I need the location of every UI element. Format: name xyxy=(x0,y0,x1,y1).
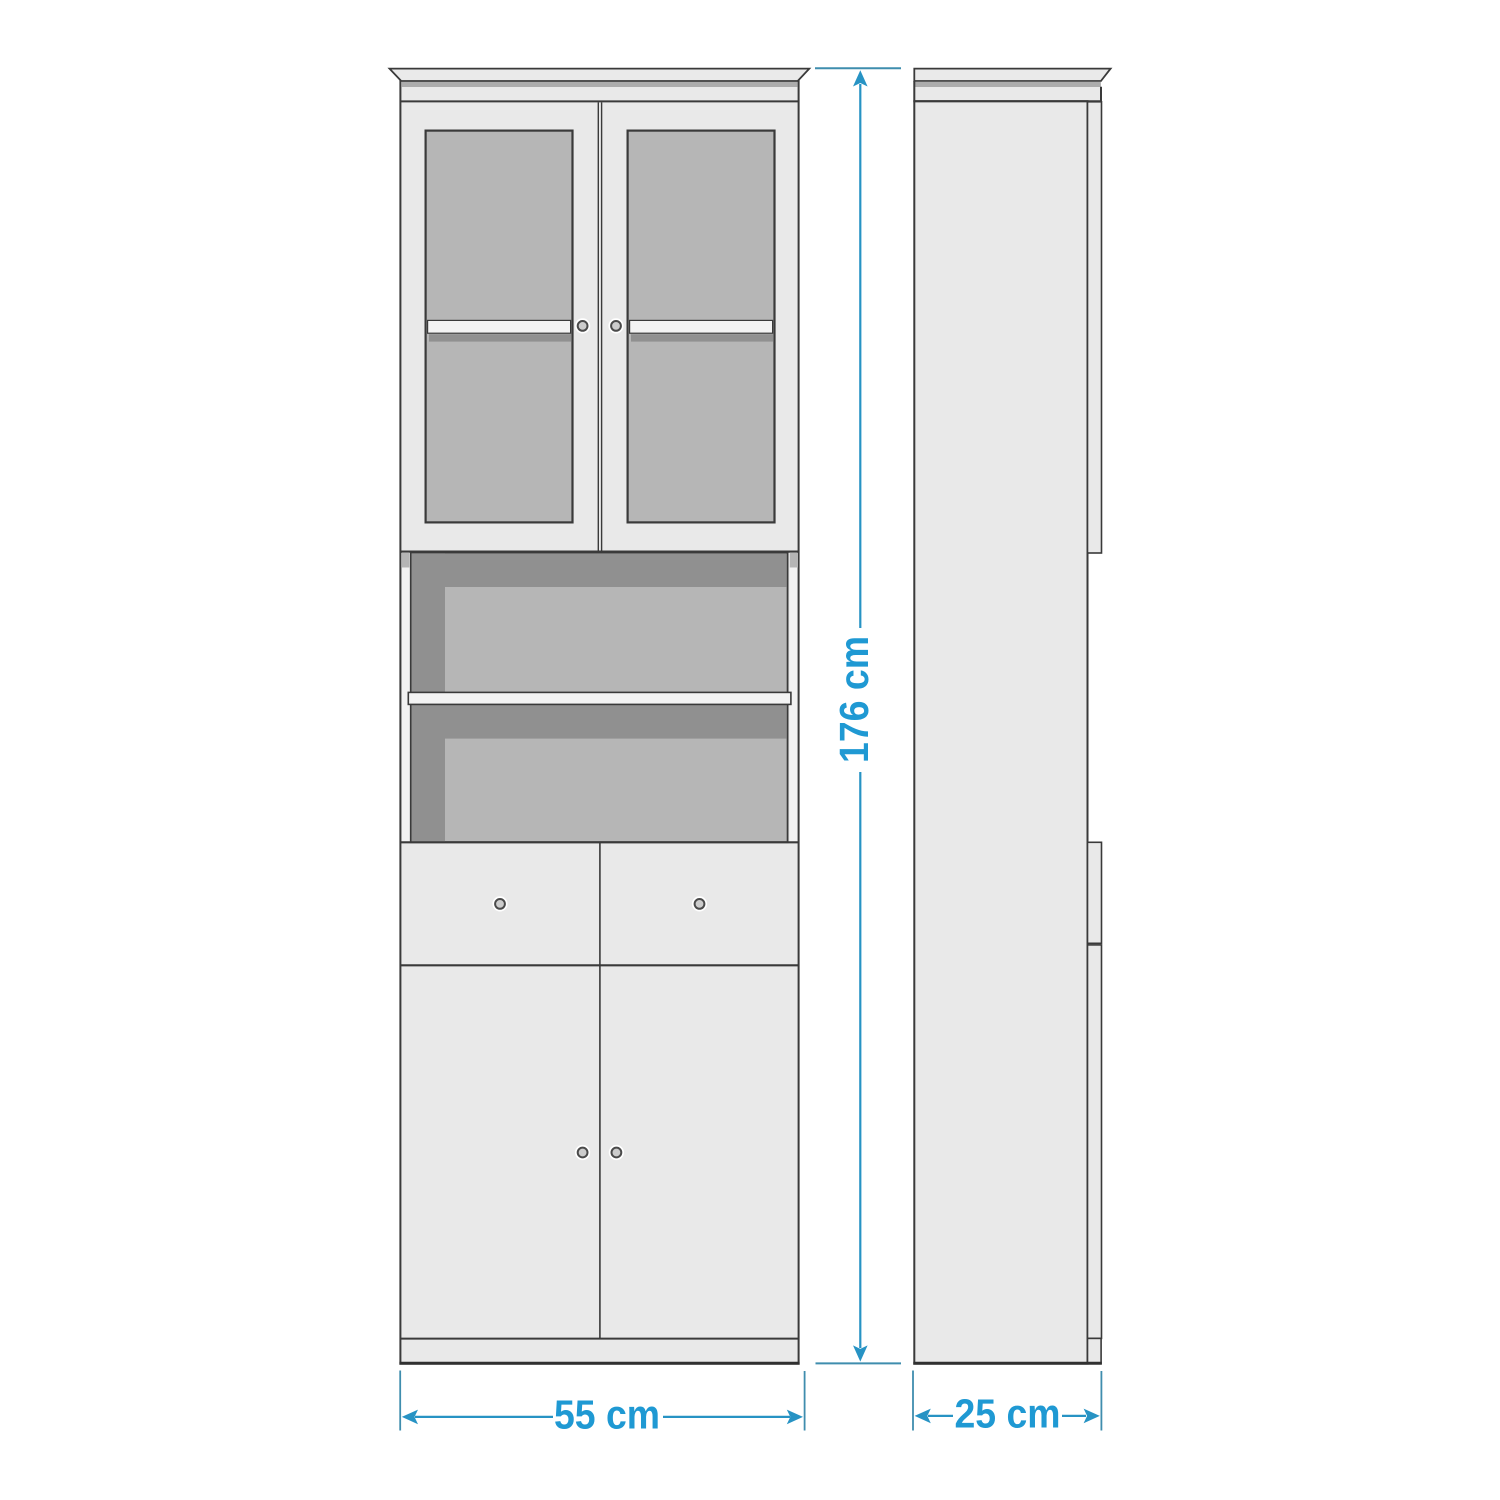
svg-text:25 cm: 25 cm xyxy=(955,1391,1061,1437)
svg-text:55 cm: 55 cm xyxy=(554,1392,660,1438)
svg-text:176 cm: 176 cm xyxy=(831,636,877,763)
